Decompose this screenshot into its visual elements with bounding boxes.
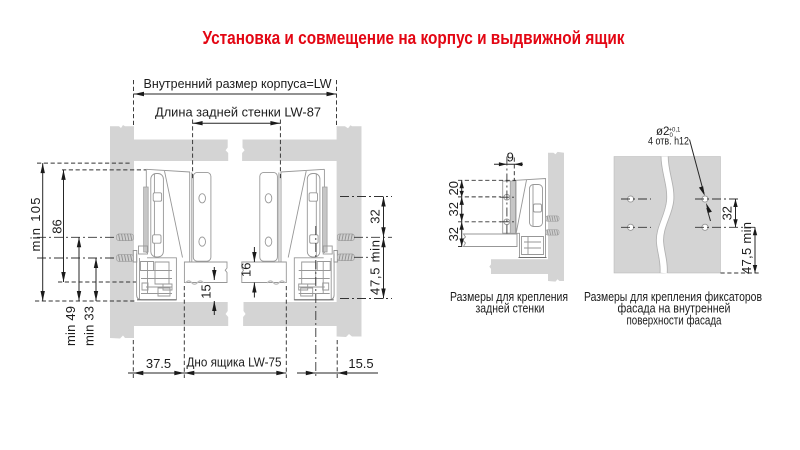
svg-text:32: 32 <box>368 209 383 223</box>
svg-text:min 33: min 33 <box>82 306 97 346</box>
svg-text:32: 32 <box>446 202 461 216</box>
svg-text:47,5 min: 47,5 min <box>368 240 383 295</box>
svg-text:86: 86 <box>50 219 65 233</box>
svg-text:Дно ящика LW-75: Дно ящика LW-75 <box>187 355 282 370</box>
svg-text:16: 16 <box>239 263 254 277</box>
svg-text:4 отв. h12: 4 отв. h12 <box>648 136 689 148</box>
svg-text:37.5: 37.5 <box>146 356 171 371</box>
svg-text:Внутренний размер корпуса=LW: Внутренний размер корпуса=LW <box>144 76 333 91</box>
svg-text:32: 32 <box>446 227 461 241</box>
svg-text:Длина задней стенки LW-87: Длина задней стенки LW-87 <box>155 105 321 120</box>
svg-text:20: 20 <box>446 181 461 195</box>
svg-text:15.5: 15.5 <box>348 356 373 371</box>
svg-text:15: 15 <box>199 284 214 298</box>
svg-text:задней стенки: задней стенки <box>476 302 545 316</box>
svg-text:32: 32 <box>720 206 735 220</box>
svg-text:47,5 min: 47,5 min <box>739 222 754 274</box>
svg-text:поверхности фасада: поверхности фасада <box>627 313 722 327</box>
svg-text:min 49: min 49 <box>63 306 78 346</box>
svg-text:Установка и совмещение на корп: Установка и совмещение на корпус и выдви… <box>203 27 626 48</box>
svg-text:min 105: min 105 <box>28 198 43 252</box>
svg-text:9: 9 <box>507 150 514 165</box>
